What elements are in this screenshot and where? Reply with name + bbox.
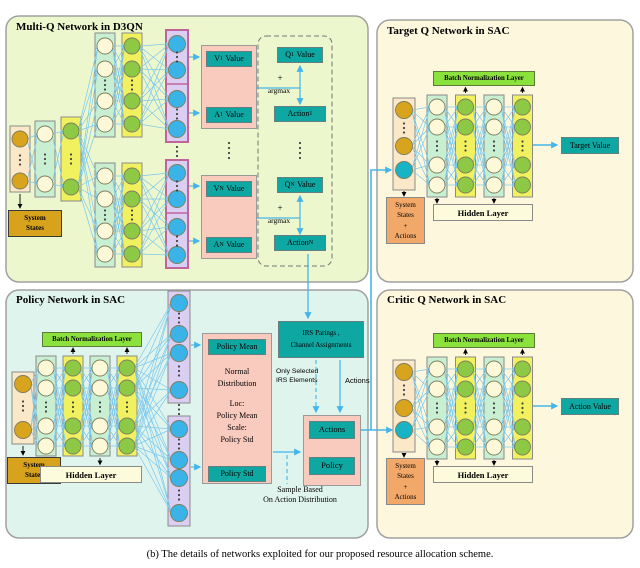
input-label-line: States [397, 210, 414, 220]
plus-label-n: + [272, 203, 288, 213]
figure: Multi-Q Network in D3QN Target Q Network… [0, 0, 640, 568]
only-selected-note: Only Selected IRS Elements [276, 368, 330, 386]
distribution-text: Normal Distribution Loc: Policy Mean Sca… [202, 366, 272, 446]
irs-pairings-box: IRS Parings , Channel Assignments [278, 321, 364, 358]
argmax-label-1: argmax [258, 86, 300, 95]
actions-arrow-label: Actions [345, 376, 370, 385]
critic-batch-norm-box: Batch Normalization Layer [433, 333, 535, 348]
system-states-line: States [26, 224, 44, 233]
figure-caption: (b) The details of networks exploited fo… [0, 549, 640, 560]
sample-note: Sample Based On Action Distribution [248, 485, 352, 505]
argmax-label-n: argmax [258, 216, 300, 225]
an-value-box: ANValue [206, 237, 252, 253]
qn-value-box: QNValue [277, 177, 323, 193]
q1-value-box: Q1Value [277, 47, 323, 63]
input-label-line: System [395, 200, 416, 210]
input-label-line: States [397, 471, 414, 481]
actions-box: Actions [309, 421, 355, 439]
target-hidden-layer-box: Hidden Layer [433, 204, 533, 221]
input-label-line: + [404, 221, 408, 231]
plus-label-1: + [272, 73, 288, 83]
multiq-panel-title: Multi-Q Network in D3QN [16, 21, 143, 33]
vn-value-box: VNValue [206, 181, 252, 197]
critic-input-label-box: System States + Actions [386, 458, 425, 505]
policy-hidden-layer-box: Hidden Layer [40, 466, 142, 483]
input-label-line: Actions [395, 231, 417, 241]
input-label-line: Actions [395, 492, 417, 502]
policy-batch-norm-box: Batch Normalization Layer [42, 332, 142, 347]
target-value-box: Target Value [561, 137, 619, 154]
policy-box: Policy [309, 457, 355, 475]
action-value-box: Action Value [561, 398, 619, 415]
multiq-system-states-box: System States [8, 210, 62, 237]
critic-hidden-layer-box: Hidden Layer [433, 466, 533, 483]
target-panel-title: Target Q Network in SAC [387, 25, 509, 37]
target-batch-norm-box: Batch Normalization Layer [433, 71, 535, 86]
policy-mean-box: Policy Mean [208, 339, 266, 355]
actionn-box: ActionN [274, 235, 326, 251]
a1-value-box: A1Value [206, 107, 252, 123]
policy-std-box: Policy Std [208, 466, 266, 482]
v1-value-box: V1Value [206, 51, 252, 67]
system-states-line: System [24, 214, 45, 223]
policy-panel-title: Policy Network in SAC [16, 294, 125, 306]
critic-panel-title: Critic Q Network in SAC [387, 294, 506, 306]
input-label-line: + [404, 482, 408, 492]
action1-box: Action1 [274, 106, 326, 122]
input-label-line: System [395, 461, 416, 471]
target-input-label-box: System States + Actions [386, 197, 425, 244]
